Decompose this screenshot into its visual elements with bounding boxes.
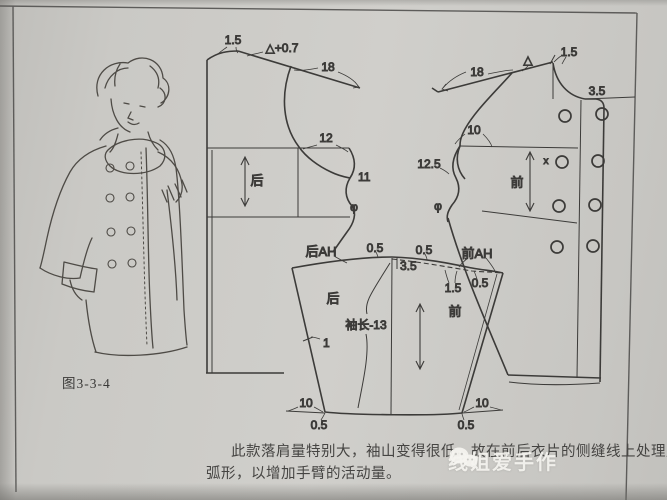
description-line-2: 弧形，以增加手臂的活动量。	[206, 462, 401, 483]
front-piece-outline	[432, 62, 604, 385]
sleeve-front-cap-label: 前AH	[461, 246, 492, 261]
sleeve-cap-notch-back-label: 0.5	[367, 241, 384, 255]
back-shoulder-extension-label: 18	[321, 60, 335, 74]
sleeve-interior	[286, 257, 503, 414]
front-shoulder-mark: △	[523, 53, 533, 67]
front-button-mark: x	[544, 156, 549, 167]
coat-hem	[95, 347, 187, 355]
back-side-note-label: 11	[358, 170, 371, 184]
front-side-note-label: 12.5	[417, 157, 441, 171]
page-bottom-shadow	[0, 483, 667, 500]
front-grain-arrow	[526, 152, 534, 211]
sleeve-back-name: 后	[326, 291, 339, 306]
scanned-book-page: 1.5 △+0.7 18 12 11 φ 后	[0, 0, 667, 500]
front-piece: 18 △ 1.5 3.5 10 12.5 φ x 前	[417, 45, 635, 385]
sleeve-cap-drop-label: 3.5	[400, 259, 417, 273]
pattern-diagram: 1.5 △+0.7 18 12 11 φ 后	[0, 0, 667, 500]
sleeve-front-name: 前	[448, 304, 461, 319]
coat-left-arm	[40, 146, 106, 268]
sleeve-length-formula-label: 袖长-13	[345, 317, 387, 332]
fashion-illustration	[40, 58, 187, 355]
sleeve-grain-arrow	[416, 304, 424, 369]
watermark: 线姐爱手作	[448, 446, 558, 475]
sleeve-leader-lines	[288, 252, 501, 420]
sleeve-cap-notch-front-label: 0.5	[416, 243, 433, 257]
sleeve-back-cap-label: 后AH	[305, 244, 336, 259]
front-edge-width-label: 3.5	[589, 84, 606, 98]
coat-front-edge	[146, 148, 153, 348]
back-piece-outline	[206, 51, 360, 373]
front-armhole-note-label: 10	[467, 123, 481, 137]
back-leader-lines	[218, 47, 359, 152]
sleeve-hem-drop-front-label: 0.5	[458, 418, 475, 432]
sleeve-seam-note-label: 1	[323, 336, 330, 350]
front-match-mark: φ	[434, 199, 442, 213]
front-piece-name: 前	[510, 175, 523, 190]
back-shoulder-drop-label: △+0.7	[266, 41, 299, 55]
sleeve-hem-drop-back-label: 0.5	[311, 418, 328, 432]
back-grain-arrow	[241, 157, 249, 206]
back-piece-name: 后	[250, 173, 263, 188]
figure-caption: 图3-3-4	[62, 372, 111, 392]
sleeve-front-ease-a-label: 1.5	[445, 281, 462, 295]
scarf-fringe	[162, 180, 187, 202]
sleeve-front-ease-b-label: 0.5	[472, 276, 489, 290]
pocket	[62, 262, 97, 292]
sleeve-hem-inset-front-label: 10	[475, 396, 489, 410]
front-neck-rise-label: 1.5	[561, 45, 578, 59]
back-match-mark: φ	[350, 200, 358, 214]
front-shoulder-extension-label: 18	[470, 65, 484, 79]
back-chest-note-label: 12	[319, 131, 333, 145]
sleeve-hem-inset-back-label: 10	[299, 396, 313, 410]
back-piece-interior	[207, 148, 350, 217]
sleeve-piece: 后AH 0.5 0.5 前AH 3.5 1.5 0.5 后 前 袖长-13 1 …	[286, 241, 503, 432]
back-neck-rise-label: 1.5	[225, 33, 242, 47]
coat-buttons	[106, 162, 136, 268]
wechat-icon	[448, 446, 478, 470]
